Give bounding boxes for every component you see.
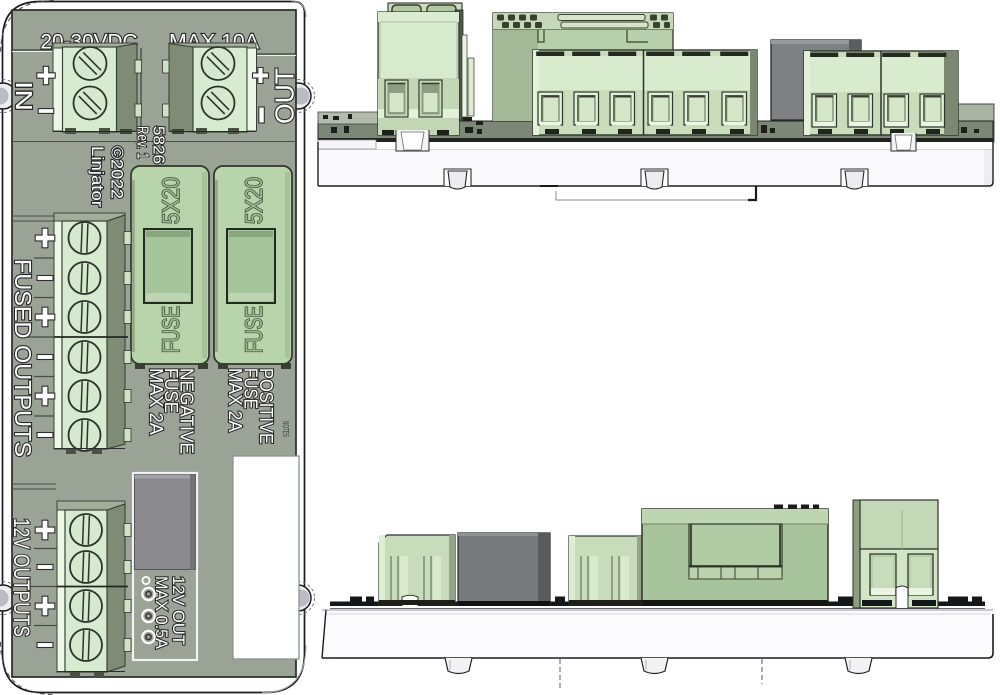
svg-text:12V OUTPUTS: 12V OUTPUTS [9, 518, 34, 637]
svg-text:Rev. 1: Rev. 1 [134, 126, 151, 159]
svg-text:©2022: ©2022 [108, 146, 127, 199]
svg-text:FUSE: FUSE [158, 306, 185, 353]
svg-text:5X20: 5X20 [241, 177, 268, 224]
svg-text:OUT: OUT [270, 68, 300, 124]
svg-text:IN: IN [11, 81, 37, 111]
svg-text:MAX 2A: MAX 2A [146, 368, 166, 435]
svg-text:5X20: 5X20 [158, 177, 185, 224]
svg-text:Linjator: Linjator [88, 146, 107, 207]
svg-text:FUSE: FUSE [241, 306, 268, 353]
svg-text:5826: 5826 [150, 126, 167, 164]
svg-text:FUSED OUTPUTS: FUSED OUTPUTS [10, 259, 36, 457]
svg-text:NOTES: NOTES [281, 421, 290, 437]
svg-text:MAX 2A: MAX 2A [225, 368, 245, 432]
